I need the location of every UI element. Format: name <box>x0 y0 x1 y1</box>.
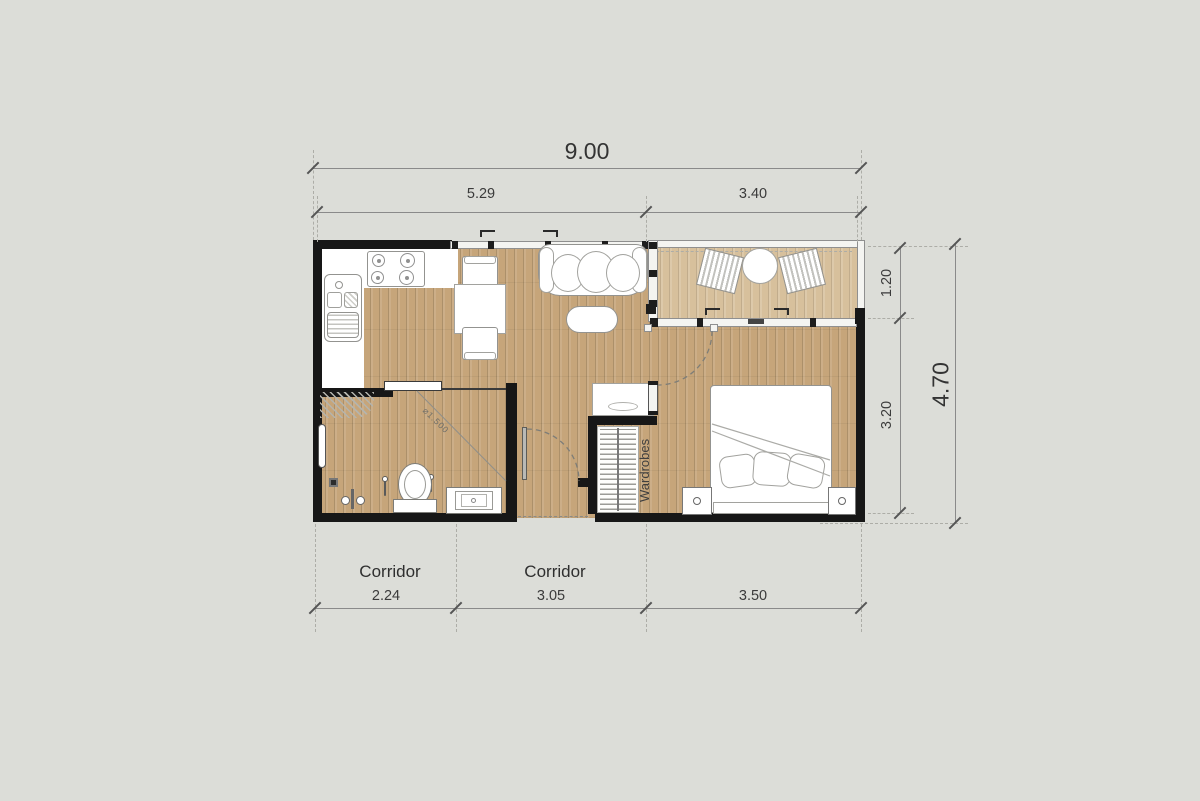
sliding-door-panel <box>384 381 442 391</box>
shower-faucet-stem <box>351 489 354 509</box>
towel-bar <box>318 424 326 468</box>
dim-top-overall: 9.00 <box>547 138 627 165</box>
wall-stub-dresser <box>648 381 658 415</box>
stove-burner <box>400 253 415 268</box>
bed <box>710 385 832 513</box>
balcony-swing-mark <box>774 308 789 315</box>
stove-burner <box>371 271 384 284</box>
extension-line <box>820 523 968 524</box>
corridor-label-center: Corridor <box>515 562 595 582</box>
window-swing-mark <box>480 230 495 237</box>
window-swing-mark <box>543 230 558 237</box>
shower-faucet-handle <box>356 496 365 505</box>
extension-line <box>861 150 862 240</box>
balcony-door-handle <box>748 319 764 324</box>
stove-burner <box>399 270 414 285</box>
balcony-junction-post <box>646 304 656 314</box>
bath-accessory-pin <box>384 480 386 496</box>
entry-threshold <box>518 516 588 517</box>
dining-chair-top-back <box>464 256 496 264</box>
wall-left <box>313 240 322 522</box>
shower-faucet-handle <box>341 496 350 505</box>
balcony-rail-mullion <box>697 318 703 327</box>
bedroom-door-jamb <box>710 324 718 332</box>
extension-line <box>313 150 314 240</box>
toilet-tank <box>393 499 437 513</box>
balcony-rail-top <box>650 240 865 248</box>
bedroom-door-jamb <box>644 324 652 332</box>
balcony-rail-right <box>857 240 865 312</box>
coffee-table <box>566 306 618 333</box>
bed-pillow <box>752 451 792 488</box>
wall-wardrobe-left <box>588 416 597 514</box>
wall-top <box>313 240 452 249</box>
dim-top-seg-1: 5.29 <box>451 186 511 202</box>
extension-line <box>646 196 647 242</box>
balcony-corner-post <box>855 308 865 324</box>
extension-line <box>868 318 914 319</box>
floor-drain <box>329 478 338 487</box>
toilet-seat <box>404 470 426 499</box>
dimension-line-top-segments <box>317 212 861 213</box>
entry-door-leaf <box>522 427 527 480</box>
bath-accessory-knob <box>382 476 388 482</box>
dimension-line-right-overall <box>955 244 956 523</box>
bed-pillow <box>785 452 826 490</box>
wardrobe-rail <box>617 428 619 511</box>
corridor-label-left: Corridor <box>350 562 430 582</box>
window-mullion <box>452 241 458 249</box>
nightstand-right-lamp <box>838 497 846 505</box>
dim-right-overall: 4.70 <box>928 355 955 415</box>
sofa-cushion <box>606 254 640 292</box>
wardrobes-label: Wardrobes <box>637 428 655 513</box>
extension-line <box>456 524 457 632</box>
wall-wardrobe-top <box>588 416 657 425</box>
wall-bottom-left <box>313 513 517 522</box>
dimension-line-top-overall <box>313 168 861 169</box>
nightstand-left-lamp <box>693 497 701 505</box>
sink-basin-right <box>344 292 358 308</box>
sink-basin-left <box>327 292 342 308</box>
dimension-line-bottom <box>315 608 861 609</box>
extension-line <box>868 513 914 514</box>
dim-right-seg-1: 1.20 <box>879 263 895 303</box>
sliding-door-track <box>442 388 506 390</box>
wall-stub-cap <box>648 381 658 385</box>
balcony-rail-mullion <box>810 318 816 327</box>
balcony-round-table <box>742 248 778 284</box>
stove-burner <box>372 254 385 267</box>
dresser-bowl <box>608 402 638 411</box>
dim-bottom-seg-1: 2.24 <box>356 588 416 604</box>
vanity-drain <box>471 498 476 503</box>
sink-drainboard <box>327 312 359 338</box>
wall-stub-cap <box>648 411 658 415</box>
dimension-line-right-segments <box>900 248 901 513</box>
dim-bottom-seg-2: 3.05 <box>521 588 581 604</box>
wall-bath-corridor <box>506 383 517 514</box>
sink-faucet <box>335 281 343 289</box>
dim-right-seg-2: 3.20 <box>879 395 895 435</box>
extension-line <box>857 196 858 242</box>
extension-line <box>861 524 862 632</box>
dresser <box>592 383 654 416</box>
extension-line <box>317 196 318 242</box>
wall-bottom-right <box>595 513 865 522</box>
door-stop-nub <box>578 478 588 487</box>
balcony-swing-mark <box>705 308 720 315</box>
shower-mat <box>320 392 374 418</box>
balcony-glass-mullion <box>649 270 657 277</box>
window-mullion <box>488 241 494 249</box>
dim-bottom-seg-3: 3.50 <box>723 588 783 604</box>
floor-plan-canvas: Wardrobes ⌀1.500 9.00 <box>0 0 1200 801</box>
balcony-glass-mullion <box>649 242 657 249</box>
dining-chair-bottom-back <box>464 352 496 360</box>
dim-top-seg-2: 3.40 <box>723 186 783 202</box>
extension-line <box>315 524 316 632</box>
extension-line <box>646 524 647 632</box>
wall-right-bedroom <box>856 310 865 522</box>
bed-headboard <box>713 502 829 514</box>
